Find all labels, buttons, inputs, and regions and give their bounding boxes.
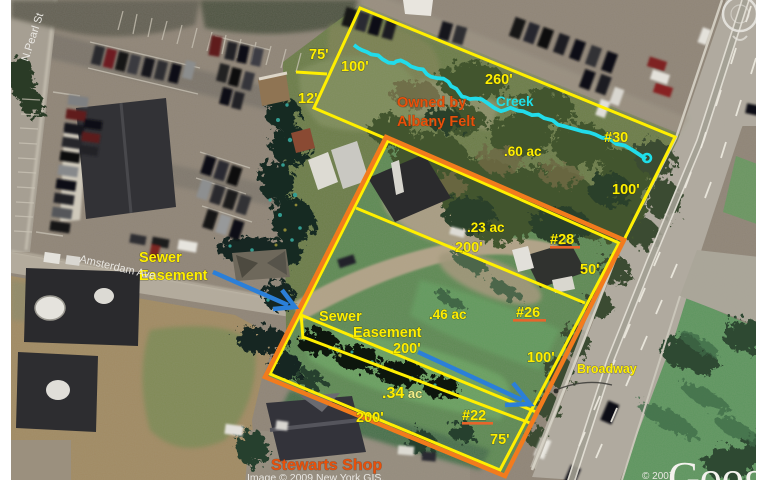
svg-text:50': 50' xyxy=(580,262,600,278)
svg-text:100': 100' xyxy=(527,350,555,366)
svg-text:Sewer: Sewer xyxy=(139,250,182,266)
svg-text:.34 ac: .34 ac xyxy=(382,385,422,402)
svg-text:Broadway: Broadway xyxy=(577,362,637,376)
svg-text:75': 75' xyxy=(309,47,329,63)
svg-text:100': 100' xyxy=(612,182,640,198)
svg-text:#30: #30 xyxy=(604,130,628,146)
svg-text:200': 200' xyxy=(455,240,483,256)
svg-text:Albany Felt: Albany Felt xyxy=(397,114,475,130)
svg-text:260': 260' xyxy=(485,72,513,88)
svg-text:.46 ac: .46 ac xyxy=(429,307,467,322)
svg-text:12': 12' xyxy=(298,91,318,107)
svg-text:.60 ac: .60 ac xyxy=(504,144,542,159)
svg-text:#28: #28 xyxy=(550,232,574,248)
svg-text:Easement: Easement xyxy=(353,325,422,341)
svg-text:Owned by: Owned by xyxy=(397,95,466,111)
svg-text:75': 75' xyxy=(490,432,510,448)
svg-text:Sewer: Sewer xyxy=(319,309,362,325)
svg-text:Googl: Googl xyxy=(668,453,768,483)
svg-text:200': 200' xyxy=(356,410,384,426)
svg-text:#22: #22 xyxy=(462,408,486,424)
svg-text:.23 ac: .23 ac xyxy=(467,220,505,235)
svg-text:200': 200' xyxy=(393,341,421,357)
svg-text:100': 100' xyxy=(341,59,369,75)
svg-text:Creek: Creek xyxy=(496,94,534,109)
svg-text:#26: #26 xyxy=(516,305,540,321)
